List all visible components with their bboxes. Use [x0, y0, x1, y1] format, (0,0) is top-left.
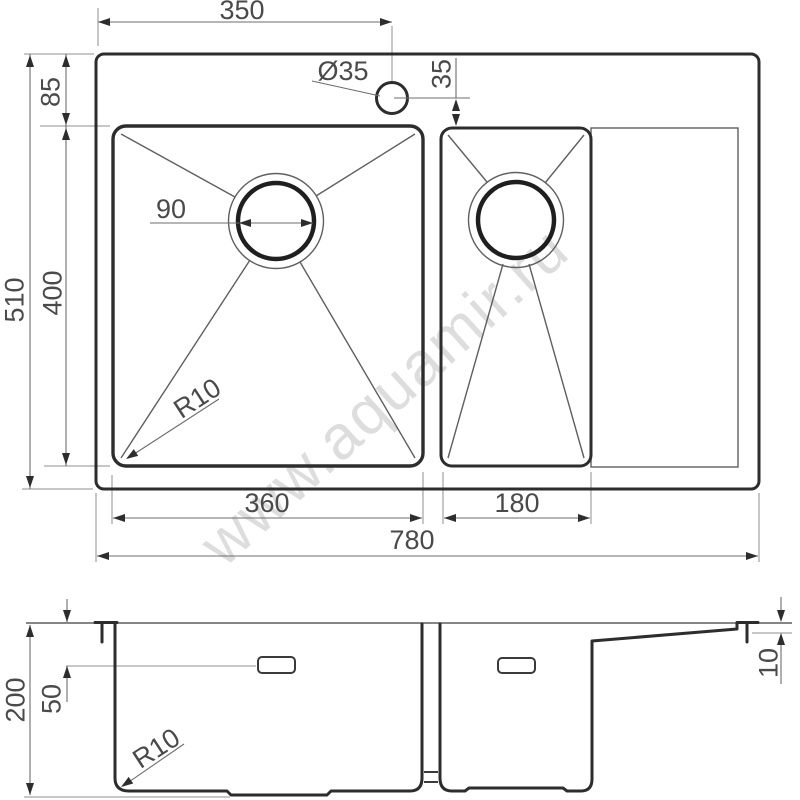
radius-r10-top-label: R10	[168, 372, 226, 424]
dim-780-label: 780	[389, 525, 434, 555]
dim-10-label: 10	[753, 648, 783, 678]
sink-outer-outline	[96, 54, 759, 489]
dim-360-label: 360	[244, 488, 289, 518]
right-drain-hole	[478, 182, 554, 258]
right-bowl-profile	[440, 623, 737, 791]
dim-50-label: 50	[36, 684, 66, 714]
left-bowl-outline	[113, 126, 423, 466]
dim-faucet-diameter-label: Ø35	[317, 56, 368, 86]
right-bowl-outline	[441, 128, 591, 466]
dimension-drawing-svg: 350 Ø35 35 85 510 400 90 R10 360 180 780…	[0, 0, 800, 800]
top-view-dimensions	[26, 18, 758, 560]
divider-channel-bottom	[424, 772, 438, 782]
dim-180-label: 180	[494, 488, 539, 518]
dim-85-label: 85	[35, 77, 65, 107]
radius-r10-side-label: R10	[127, 722, 185, 774]
dim-350-label: 350	[219, 0, 264, 25]
top-view	[96, 54, 759, 489]
dim-90-label: 90	[156, 194, 186, 224]
right-overflow-hole	[498, 658, 535, 673]
dim-400-label: 400	[37, 270, 67, 315]
right-mounting-clip	[737, 623, 758, 643]
dim-510-label: 510	[0, 277, 29, 322]
left-bowl-profile	[115, 624, 422, 795]
left-drain-outer-ring	[229, 174, 324, 269]
drainboard-outline	[591, 128, 738, 467]
sink-technical-drawing: www.aquamir.ru	[0, 0, 800, 800]
left-overflow-hole	[258, 657, 295, 673]
dim-35-label: 35	[426, 59, 456, 89]
right-drain-outer-ring	[469, 173, 564, 268]
dimension-labels: 350 Ø35 35 85 510 400 90 R10 360 180 780…	[0, 0, 783, 774]
dim-200-label: 200	[0, 677, 30, 722]
